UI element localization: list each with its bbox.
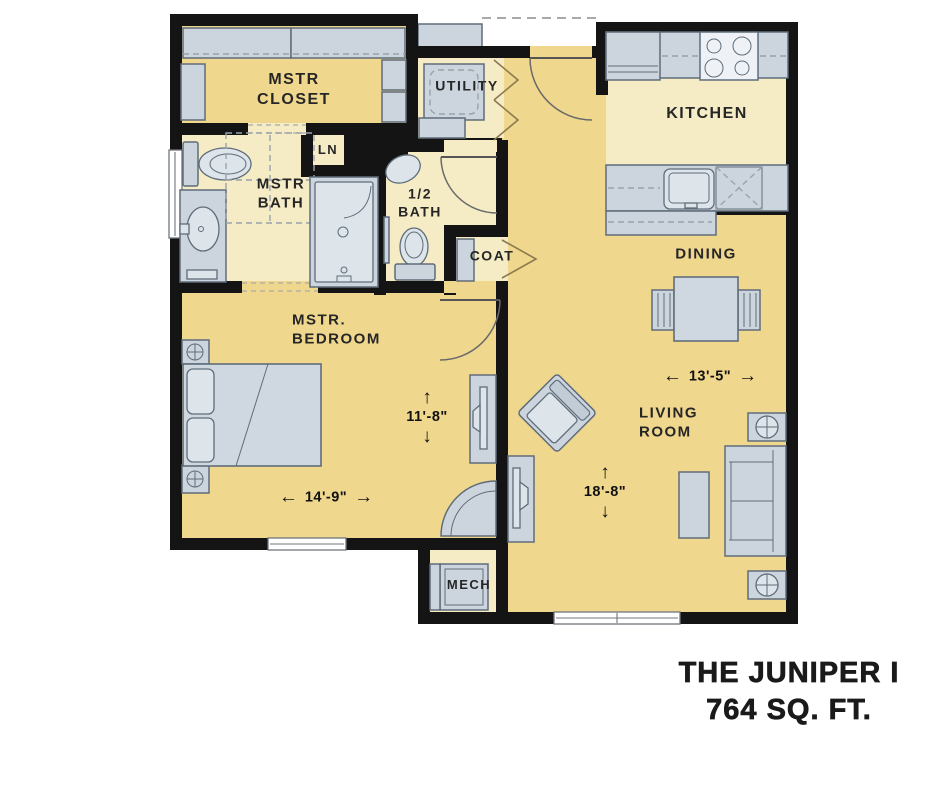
dining-table-icon <box>674 277 738 341</box>
plan-title-name: THE JUNIPER I <box>679 655 900 692</box>
porch-bench <box>418 24 482 48</box>
room-label-linen: LN <box>318 142 338 158</box>
dimension-text-bedroom-depth: 11'-8" <box>406 409 448 425</box>
plan-title-sqft: 764 SQ. FT. <box>679 692 900 729</box>
utility-shelf <box>419 118 465 138</box>
closet-shelf-right-1 <box>382 60 406 90</box>
floor-plan-canvas: MSTR CLOSET UTILITY KITCHEN MSTR BATH LN… <box>0 0 940 788</box>
arrow-down-icon: ↓ <box>422 427 432 446</box>
room-label-half-bath: 1/2 BATH <box>398 186 442 221</box>
coffee-table <box>679 472 709 538</box>
plan-title: THE JUNIPER I 764 SQ. FT. <box>679 655 900 729</box>
dimension-bedroom-width: ← 14'-9" → <box>279 488 373 507</box>
arrow-up-icon: ↑ <box>422 388 432 407</box>
stove-icon <box>700 32 758 80</box>
half-bath-toilet-tank <box>395 264 435 280</box>
bedroom-tv-icon <box>480 387 487 449</box>
dimension-living-depth: ↑ 18'-8" ↓ <box>584 463 626 521</box>
kitchen-peninsula <box>606 211 716 235</box>
kitchen-faucet <box>685 203 697 208</box>
arrow-left-icon: ← <box>279 488 298 507</box>
room-label-mstr-closet: MSTR CLOSET <box>257 70 331 110</box>
arrow-up-icon: ↑ <box>600 463 610 482</box>
room-label-utility: UTILITY <box>435 77 498 95</box>
toilet-icon <box>199 148 251 180</box>
toilet-tank <box>183 142 198 186</box>
closet-shelf-right-2 <box>382 92 406 122</box>
dimension-bedroom-depth: ↑ 11'-8" ↓ <box>406 388 448 446</box>
dimension-text-bedroom-width: 14'-9" <box>305 489 347 505</box>
arrow-down-icon: ↓ <box>600 502 610 521</box>
room-label-mstr-bedroom: MSTR. BEDROOM <box>292 311 381 349</box>
arrow-right-icon: → <box>738 367 757 386</box>
half-bath-toilet-icon <box>400 228 428 266</box>
towel-bar <box>384 217 389 263</box>
room-label-kitchen: KITCHEN <box>666 104 748 124</box>
mech-louver <box>430 564 440 610</box>
dimension-text-living-width: 13'-5" <box>689 368 731 384</box>
dining-chair-right <box>738 290 760 330</box>
dining-chair-left <box>652 290 674 330</box>
room-label-living-room: LIVING ROOM <box>639 404 698 442</box>
living-tv-icon <box>513 468 520 528</box>
room-label-mstr-bath: MSTR BATH <box>257 175 306 213</box>
closet-shelf-left <box>181 64 205 120</box>
bath-faucet <box>180 224 189 234</box>
pillow-1 <box>187 369 214 414</box>
room-label-mech: MECH <box>447 577 491 593</box>
arrow-right-icon: → <box>354 488 373 507</box>
arrow-left-icon: ← <box>663 367 682 386</box>
pillow-2 <box>187 418 214 462</box>
dimension-text-living-depth: 18'-8" <box>584 484 626 500</box>
dimension-living-width: ← 13'-5" → <box>663 367 757 386</box>
bath-shelf <box>187 270 217 279</box>
refrigerator-icon <box>606 32 660 80</box>
room-label-dining: DINING <box>675 246 737 265</box>
room-label-coat: COAT <box>470 247 515 265</box>
